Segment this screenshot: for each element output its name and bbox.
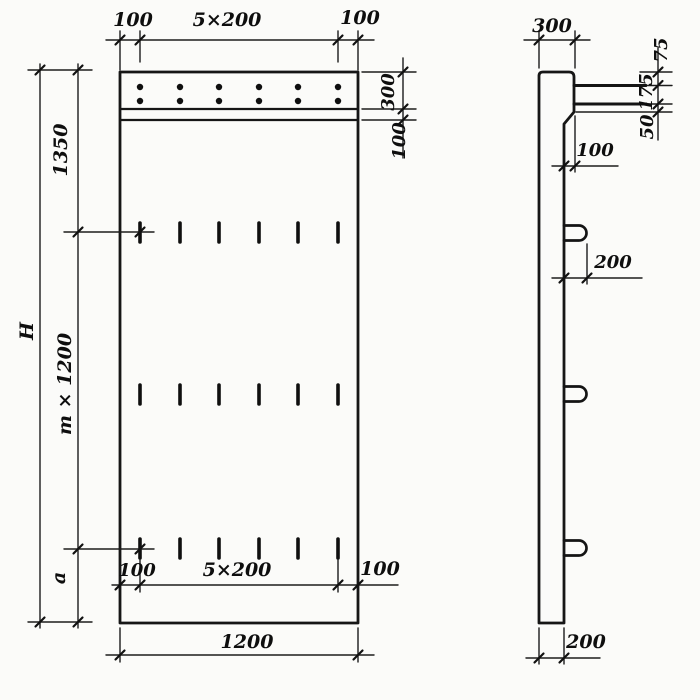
front-bottom-width-label: 1200 <box>221 631 274 653</box>
front-right-ledge-label: 100 <box>389 122 410 160</box>
front-view: 100 5×200 100 300 100 <box>16 7 416 662</box>
side-top-thickness-label: 300 <box>532 15 572 37</box>
lifting-loop-middle <box>564 387 587 402</box>
lifting-loop-lower <box>564 541 587 556</box>
front-left-dimension: 1350 H m × 1200 a <box>16 64 154 628</box>
front-top-dimension: 100 5×200 100 <box>106 7 380 70</box>
front-top-right-label: 100 <box>340 7 380 29</box>
side-step-label: 100 <box>576 140 614 161</box>
side-stack-bottom-label: 50 <box>637 114 658 140</box>
side-stack-top-label: 75 <box>651 37 672 62</box>
rebar-dots <box>137 84 341 104</box>
side-stack-middle-label: 175 <box>636 73 657 111</box>
side-loop-offset-label: 200 <box>593 252 632 273</box>
front-top-middle-label: 5×200 <box>193 9 262 31</box>
slot-row-upper <box>140 223 338 242</box>
front-top-left-label: 100 <box>113 9 153 31</box>
side-right-stack-dimension: 75 175 50 <box>576 37 672 140</box>
side-bottom-dimension: 200 <box>526 628 606 664</box>
panel-drawing-svg: 100 5×200 100 300 100 <box>0 0 700 700</box>
front-bottom-inner-right-label: 100 <box>360 558 400 580</box>
front-left-overall-label: H <box>16 321 38 341</box>
front-left-upper-label: 1350 <box>50 124 72 177</box>
side-bottom-thickness-label: 200 <box>565 631 606 653</box>
lifting-loop-upper <box>564 226 587 241</box>
front-bottom-inner-left-label: 100 <box>118 560 156 581</box>
front-right-band-label: 300 <box>378 73 399 111</box>
front-right-dimension: 300 100 <box>362 58 416 160</box>
side-step-dimension: 100 <box>552 116 618 172</box>
panel-outline <box>120 72 358 623</box>
front-left-middle-label: m × 1200 <box>54 333 76 435</box>
side-loop-dimension: 200 <box>552 244 642 284</box>
front-bottom-inner-middle-label: 5×200 <box>203 559 272 581</box>
side-view: 300 75 175 50 100 <box>524 15 672 664</box>
side-top-dimension: 300 <box>524 15 590 68</box>
slot-row-lower <box>140 539 338 558</box>
front-bottom-dimension: 1200 <box>106 628 374 662</box>
slot-row-middle <box>140 385 338 404</box>
front-left-lower-label: a <box>48 572 70 584</box>
scanned-technical-drawing: 100 5×200 100 300 100 <box>0 0 700 700</box>
